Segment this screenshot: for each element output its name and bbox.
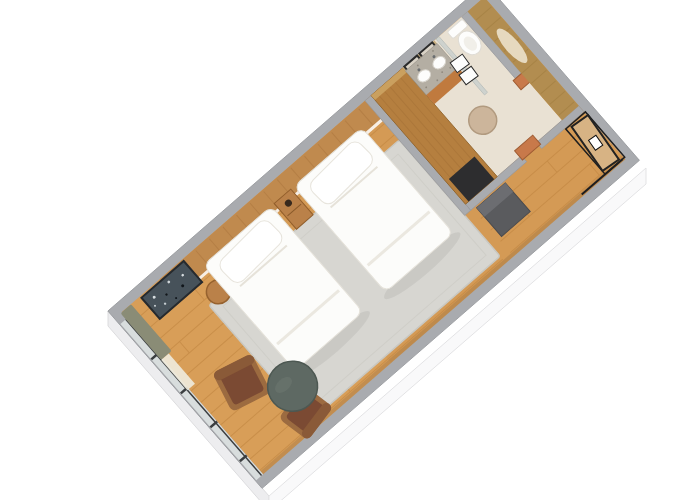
floor-plan-stage	[0, 0, 700, 500]
floor-plan-render	[0, 0, 700, 500]
